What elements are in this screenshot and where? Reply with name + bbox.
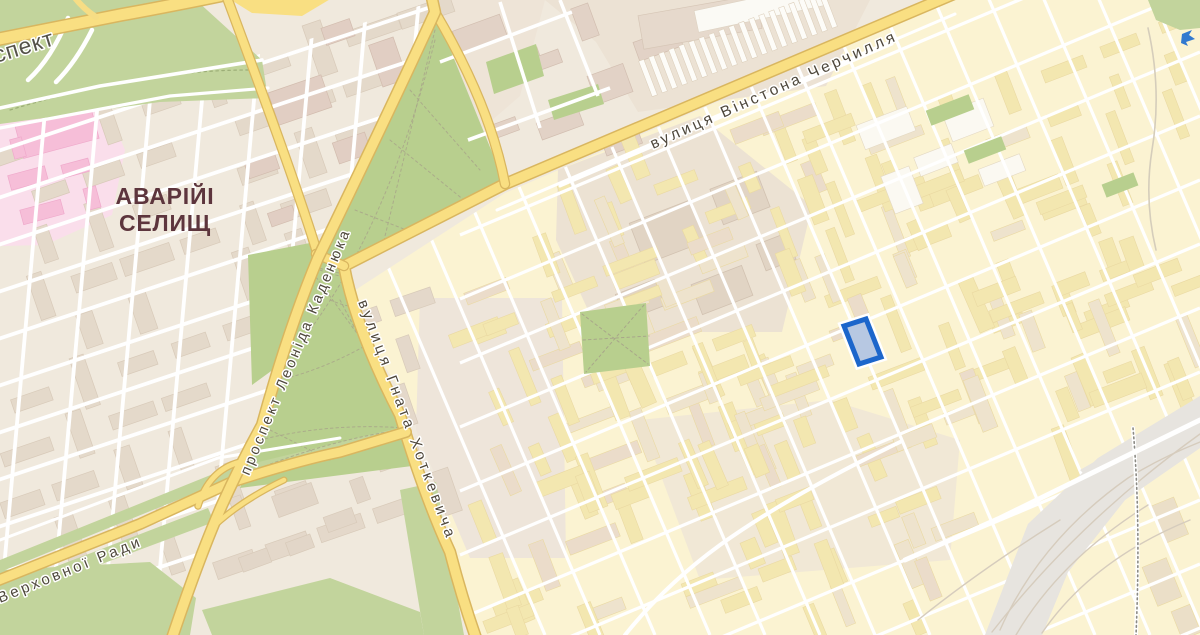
svg-text:СЕЛИЩ: СЕЛИЩ xyxy=(119,210,211,236)
svg-text:АВАРІЙІ: АВАРІЙІ xyxy=(116,182,215,209)
